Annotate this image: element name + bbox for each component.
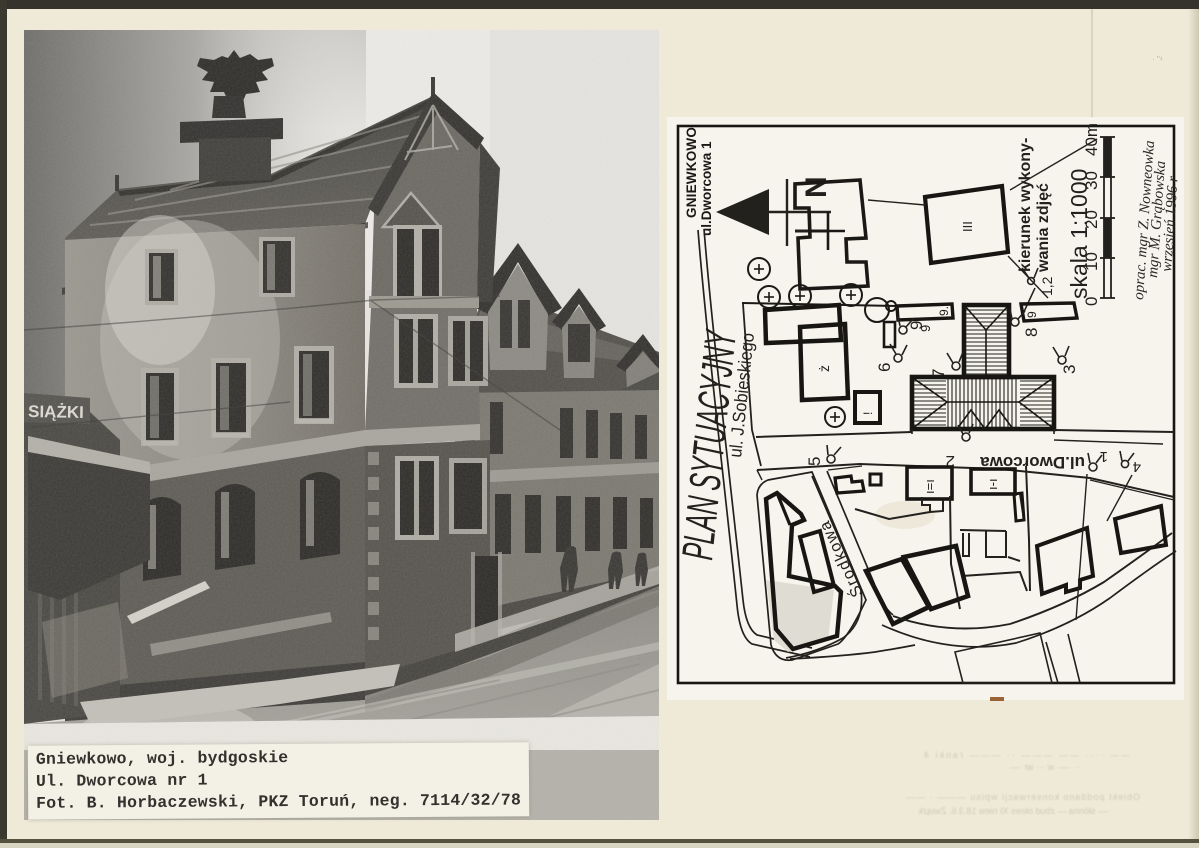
svg-text:9.: 9. [937,306,951,316]
svg-text:1: 1 [1100,448,1108,465]
svg-text:40m: 40m [1082,123,1101,156]
svg-text:ı-ı: ı-ı [985,478,1000,490]
svg-text:6: 6 [875,363,894,372]
svg-text:ż: ż [816,365,832,372]
svg-text:9: 9 [918,325,933,332]
svg-text:1,2: 1,2 [1039,276,1055,296]
svg-text:N: N [800,176,833,198]
svg-text:0: 0 [1082,297,1101,306]
svg-text:10: 10 [1082,252,1101,271]
svg-text:!: ! [861,412,875,415]
svg-text:GNIEWKOWO: GNIEWKOWO [684,127,699,218]
svg-text:5: 5 [805,457,824,466]
svg-text:4: 4 [1133,458,1141,475]
svg-text:ı=ı: ı=ı [922,479,937,494]
svg-text:wania zdjęć: wania zdjęć [1035,183,1052,273]
svg-text:20: 20 [1082,210,1101,229]
svg-text:3: 3 [1060,365,1079,374]
svg-text:ul.Dworcowa 1: ul.Dworcowa 1 [699,141,714,236]
svg-text:7: 7 [929,369,948,378]
svg-text:kierunek wykony-: kierunek wykony- [1017,138,1034,272]
svg-text:30: 30 [1082,171,1101,190]
svg-text:9: 9 [1025,311,1039,318]
svg-text:III: III [960,221,975,232]
svg-text:8: 8 [1022,328,1041,337]
